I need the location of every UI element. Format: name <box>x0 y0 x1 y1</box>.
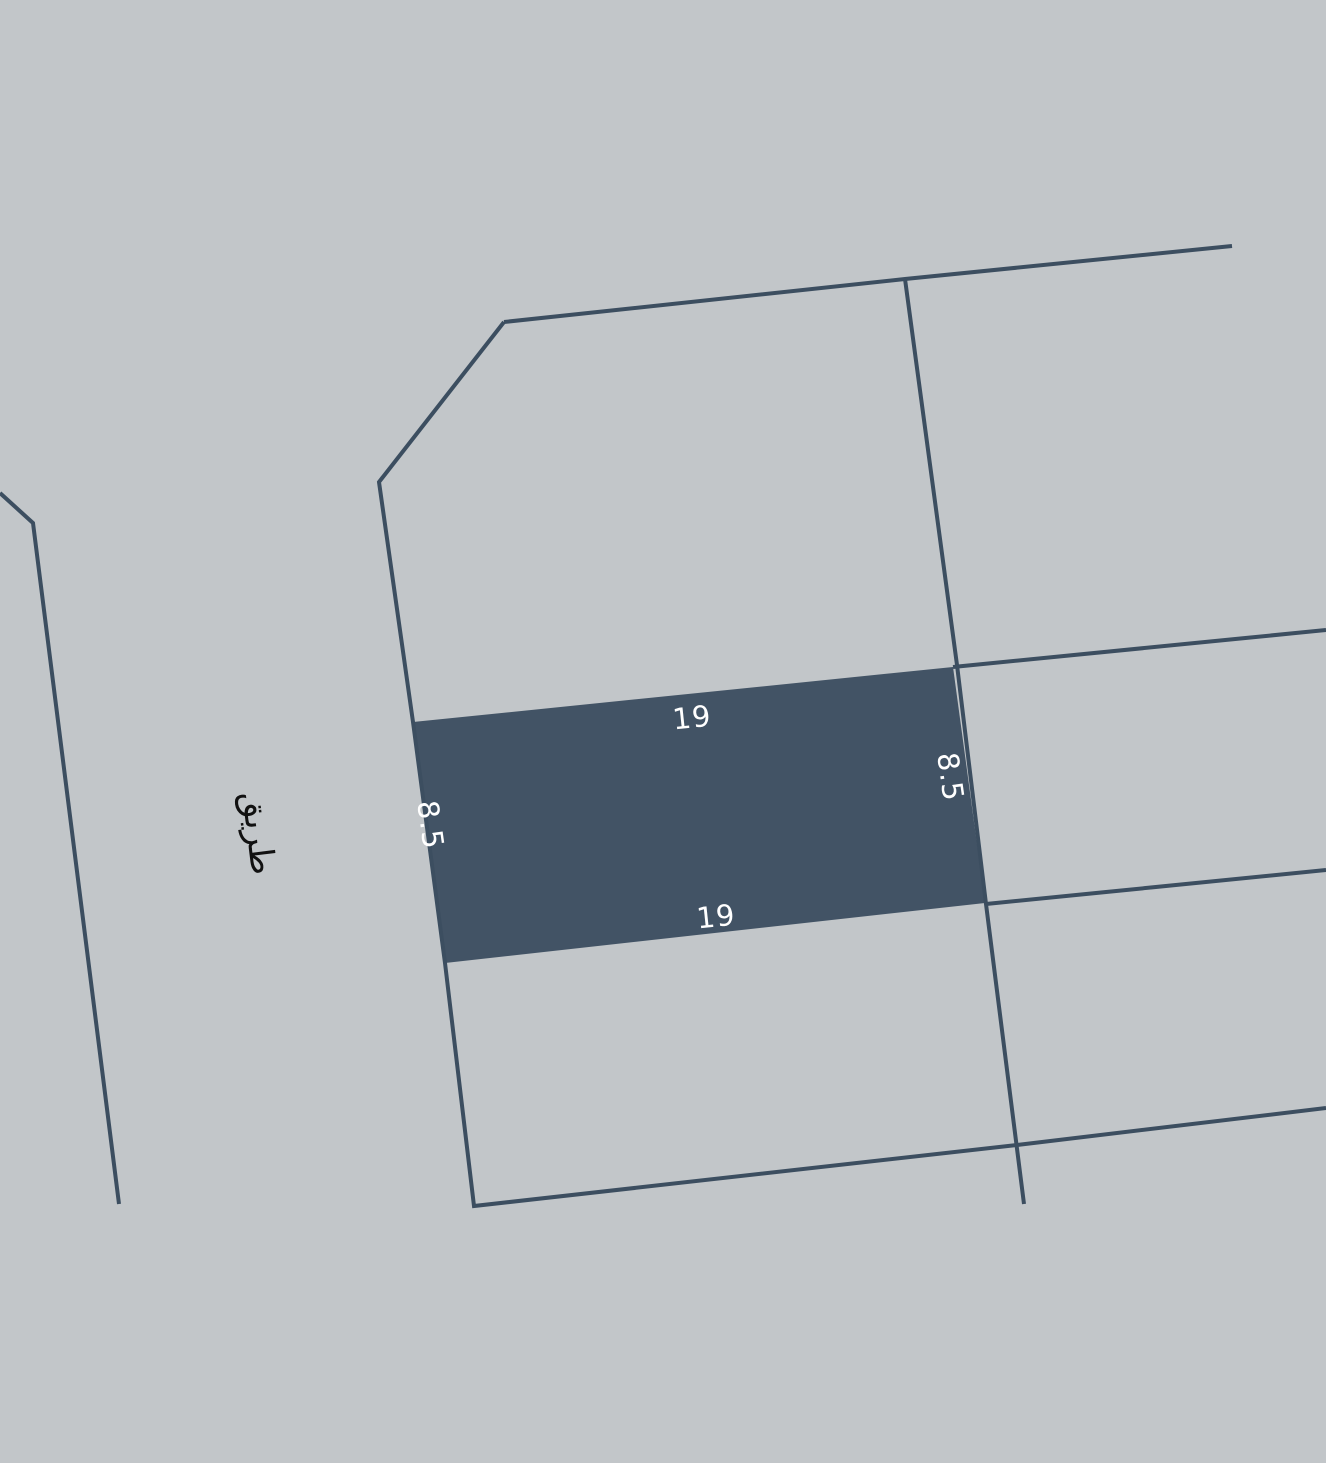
cadastral-map: 19 19 8.5 8.5 طريق <box>0 0 1326 1463</box>
dimension-label-top: 19 <box>671 702 713 735</box>
road-name-label: طريق <box>236 789 280 876</box>
dimension-label-right: 8.5 <box>932 751 968 804</box>
dimension-label-left: 8.5 <box>412 799 448 852</box>
parcel-map-canvas <box>0 0 1326 1463</box>
dimension-label-bottom: 19 <box>695 901 737 934</box>
